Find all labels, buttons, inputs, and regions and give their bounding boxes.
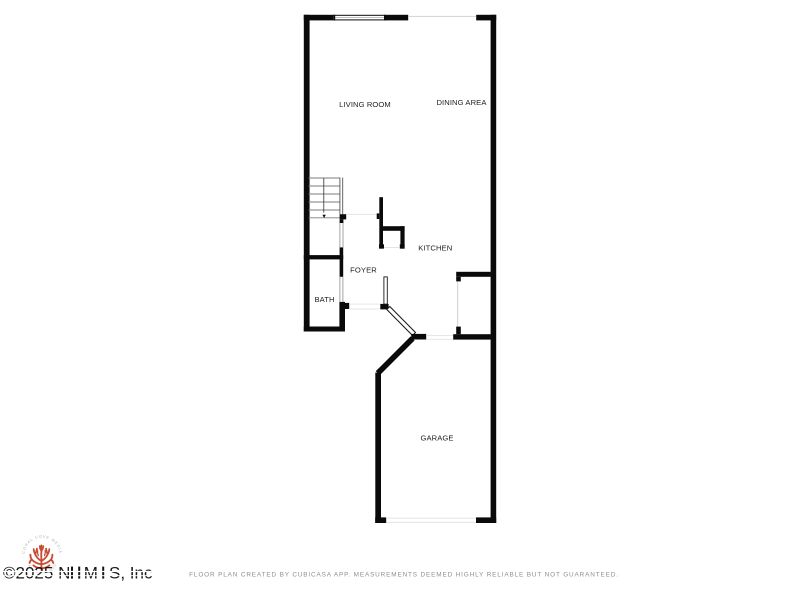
svg-text:FOYER: FOYER bbox=[350, 266, 377, 275]
svg-text:LIVING ROOM: LIVING ROOM bbox=[339, 100, 391, 109]
svg-text:M: M bbox=[84, 564, 98, 583]
svg-text:DINING AREA: DINING AREA bbox=[436, 98, 487, 107]
svg-text:GARAGE: GARAGE bbox=[420, 433, 453, 442]
svg-text:S, Inc: S, Inc bbox=[109, 564, 153, 583]
svg-text:KITCHEN: KITCHEN bbox=[418, 244, 452, 253]
svg-text:BATH: BATH bbox=[314, 295, 334, 304]
svg-text:©2025 N: ©2025 N bbox=[3, 564, 70, 583]
svg-text:FLOOR PLAN CREATED BY CUBICASA: FLOOR PLAN CREATED BY CUBICASA APP. MEAS… bbox=[189, 571, 619, 578]
